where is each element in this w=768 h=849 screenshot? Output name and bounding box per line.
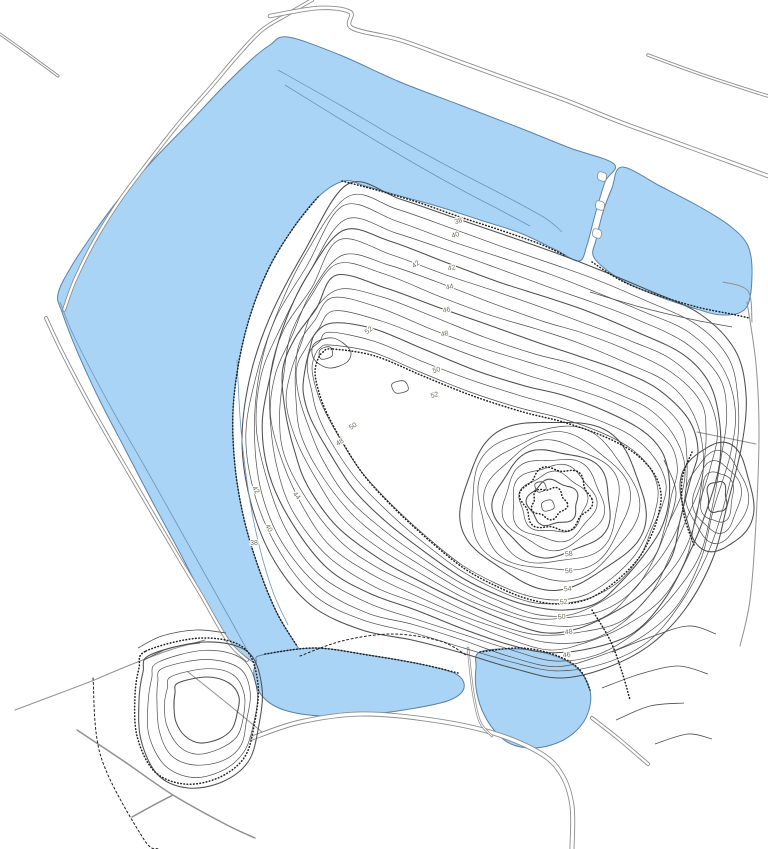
northeast-pond bbox=[593, 167, 752, 315]
sw-square-mound-ring bbox=[157, 660, 251, 766]
southwest-pond bbox=[254, 648, 465, 716]
main-hill-ring bbox=[282, 274, 698, 633]
elevation-label: 52 bbox=[430, 391, 439, 400]
elevation-label: 56 bbox=[565, 568, 574, 576]
elevation-label: 54 bbox=[564, 586, 573, 594]
summit-cone-ring bbox=[502, 459, 605, 550]
mound-ridge-2 bbox=[144, 643, 200, 660]
field-road-2 bbox=[77, 730, 255, 838]
summit-cone-ring bbox=[460, 422, 647, 590]
nw-terrace-oval bbox=[312, 338, 351, 368]
se-contour-1 bbox=[612, 626, 716, 652]
summit-cone-ring bbox=[472, 426, 640, 581]
summit-scarp-2 bbox=[531, 487, 567, 519]
summit-cone-ring bbox=[526, 479, 578, 525]
sw-square-mound-ring bbox=[164, 669, 245, 755]
elevation-label: 42 bbox=[250, 485, 260, 495]
sw-square-mound-contours bbox=[139, 642, 263, 788]
summit-cone-ring bbox=[513, 464, 597, 542]
elevation-label: 46 bbox=[442, 306, 451, 314]
road-east-edge bbox=[740, 302, 759, 646]
elevation-label: 50 bbox=[432, 366, 441, 375]
main-hill-ring bbox=[312, 345, 658, 600]
elevation-label: 44 bbox=[445, 283, 454, 291]
topographic-map-svg: 3840424244464850525250484244403858565452… bbox=[0, 0, 768, 849]
road-top-left-corner bbox=[0, 34, 58, 76]
se-contour-4 bbox=[655, 734, 712, 744]
summit-scarp-1 bbox=[519, 467, 592, 531]
road-pond-spur bbox=[592, 718, 648, 764]
field-road-3 bbox=[132, 795, 173, 817]
elevation-label: 40 bbox=[263, 523, 273, 533]
map-canvas: 3840424244464850525250484244403858565452… bbox=[0, 0, 768, 849]
se-slope-scarp bbox=[592, 610, 630, 700]
se-contour-3 bbox=[616, 703, 684, 720]
nw-terrace-inner bbox=[319, 347, 332, 360]
elevation-label: 52 bbox=[364, 326, 375, 336]
field-road-1 bbox=[15, 681, 92, 710]
elevation-label: 50 bbox=[348, 422, 358, 432]
se-contour-2 bbox=[602, 666, 708, 688]
elevation-label: 38 bbox=[250, 540, 258, 547]
elevation-label: 42 bbox=[447, 264, 456, 272]
islet-2 bbox=[596, 201, 605, 210]
summit-cone-contours bbox=[460, 422, 647, 590]
elevation-label: 48 bbox=[564, 628, 573, 636]
elevation-label: 52 bbox=[559, 598, 568, 606]
elevation-label: 48 bbox=[440, 330, 449, 338]
elevation-label: 40 bbox=[451, 231, 461, 240]
summit-cone-ring bbox=[478, 432, 631, 570]
elevation-label: 46 bbox=[562, 651, 571, 659]
elevation-label: 42 bbox=[411, 260, 421, 270]
elevation-label: 48 bbox=[335, 438, 345, 448]
elevation-label: 50 bbox=[557, 613, 566, 621]
islet-3 bbox=[593, 229, 602, 238]
main-hill-ring bbox=[270, 254, 706, 644]
elevation-label: 58 bbox=[565, 551, 574, 559]
elevation-label: 38 bbox=[454, 217, 464, 226]
summit-dot-2 bbox=[542, 500, 555, 511]
elevation-label: 44 bbox=[291, 491, 301, 502]
islet-1 bbox=[598, 172, 607, 181]
plateau-depression bbox=[392, 381, 409, 394]
field-road-4 bbox=[92, 640, 205, 681]
